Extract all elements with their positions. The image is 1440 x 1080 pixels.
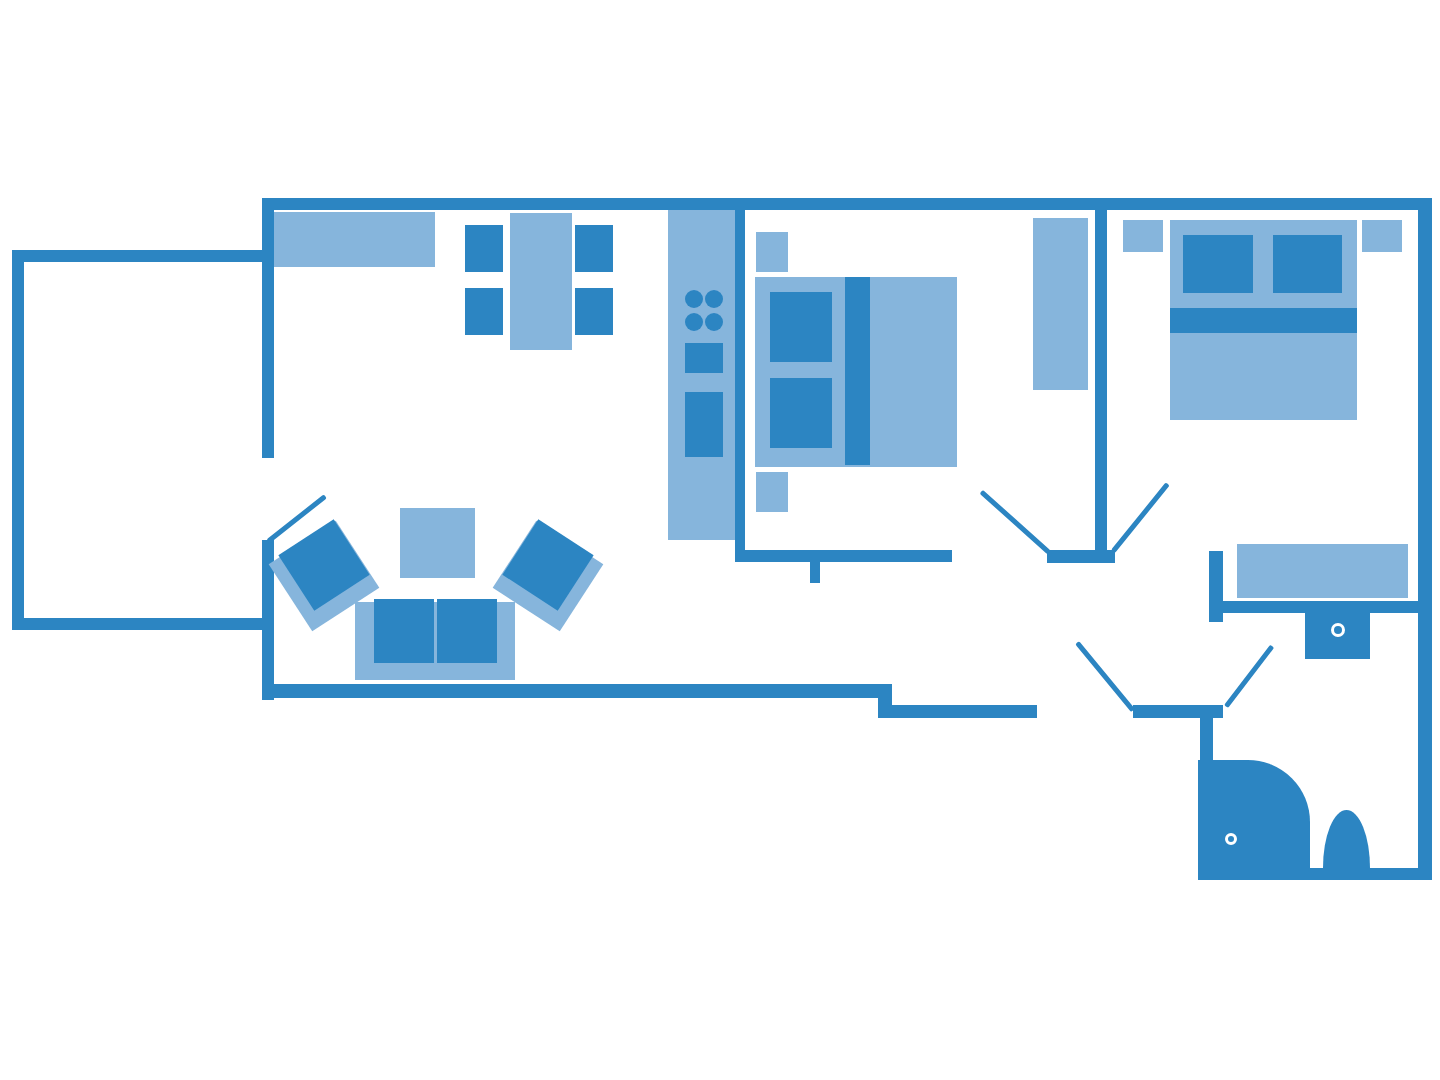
bedroom-right-nightstand-right <box>1362 220 1402 252</box>
stove-burner-4 <box>705 313 723 331</box>
doorway-separator-wall <box>1047 550 1115 563</box>
bedroom-middle-pillow-top <box>770 292 832 362</box>
balcony-top-wall <box>12 250 262 262</box>
bedroom-middle-door-leaf <box>979 489 1050 554</box>
bedroom-right-duvet-stripe <box>1170 308 1357 333</box>
bedroom-middle-pillow-bottom <box>770 378 832 448</box>
bathroom-top-wall <box>1223 601 1418 613</box>
floor-plan <box>0 0 1440 1080</box>
stove-burner-1 <box>685 290 703 308</box>
kitchen-sink <box>685 343 723 373</box>
stove-burner-2 <box>705 290 723 308</box>
sofa-cushion-left <box>374 599 434 663</box>
dining-table <box>510 213 572 350</box>
dining-chair-3 <box>465 288 503 335</box>
dining-chair-4 <box>575 288 613 335</box>
shower <box>1198 760 1310 868</box>
bedroom-right-door-leaf <box>1111 481 1170 552</box>
shower-drain <box>1225 833 1237 845</box>
top-wall <box>262 198 1432 210</box>
bedroom-middle-wardrobe <box>1033 218 1088 390</box>
bedroom-middle-wall-stub <box>810 562 820 583</box>
bathroom-washbasin-drain <box>1331 623 1345 637</box>
bedroom-right-pillow-right <box>1273 235 1342 293</box>
bedrooms-partition-wall <box>1095 210 1107 552</box>
kitchen-counter <box>668 210 735 540</box>
bedroom-middle-nightstand-top <box>756 232 788 272</box>
bathroom-entry-stub-wall <box>1209 551 1223 622</box>
hall-bottom-wall-right <box>1133 705 1223 718</box>
bedroom-middle-bottom-wall <box>737 550 952 562</box>
right-wall <box>1418 198 1432 880</box>
bedroom-middle-duvet-stripe <box>845 277 870 465</box>
balcony-left-wall <box>12 250 24 630</box>
entrance-door-leaf <box>1075 640 1135 711</box>
toilet <box>1323 810 1370 868</box>
bedroom-right-nightstand-left <box>1123 220 1163 252</box>
bedroom-right-dresser <box>1237 544 1408 598</box>
bedroom-right-pillow-left <box>1183 235 1253 293</box>
bathroom-bottom-wall <box>1198 868 1432 880</box>
stove-burner-3 <box>685 313 703 331</box>
sideboard <box>274 212 435 267</box>
kitchen-partition-wall <box>735 208 745 562</box>
hall-bottom-wall-left <box>878 705 1037 718</box>
dining-chair-1 <box>465 225 503 272</box>
living-room-bottom-wall <box>262 684 892 698</box>
sofa-cushion-right <box>437 599 497 663</box>
coffee-table <box>400 508 475 578</box>
bathroom-door-leaf <box>1224 644 1274 707</box>
left-wall-upper <box>262 198 274 458</box>
balcony-bottom-wall <box>12 618 262 630</box>
bedroom-middle-nightstand-bottom <box>756 472 788 512</box>
kitchen-appliance <box>685 392 723 457</box>
dining-chair-2 <box>575 225 613 272</box>
